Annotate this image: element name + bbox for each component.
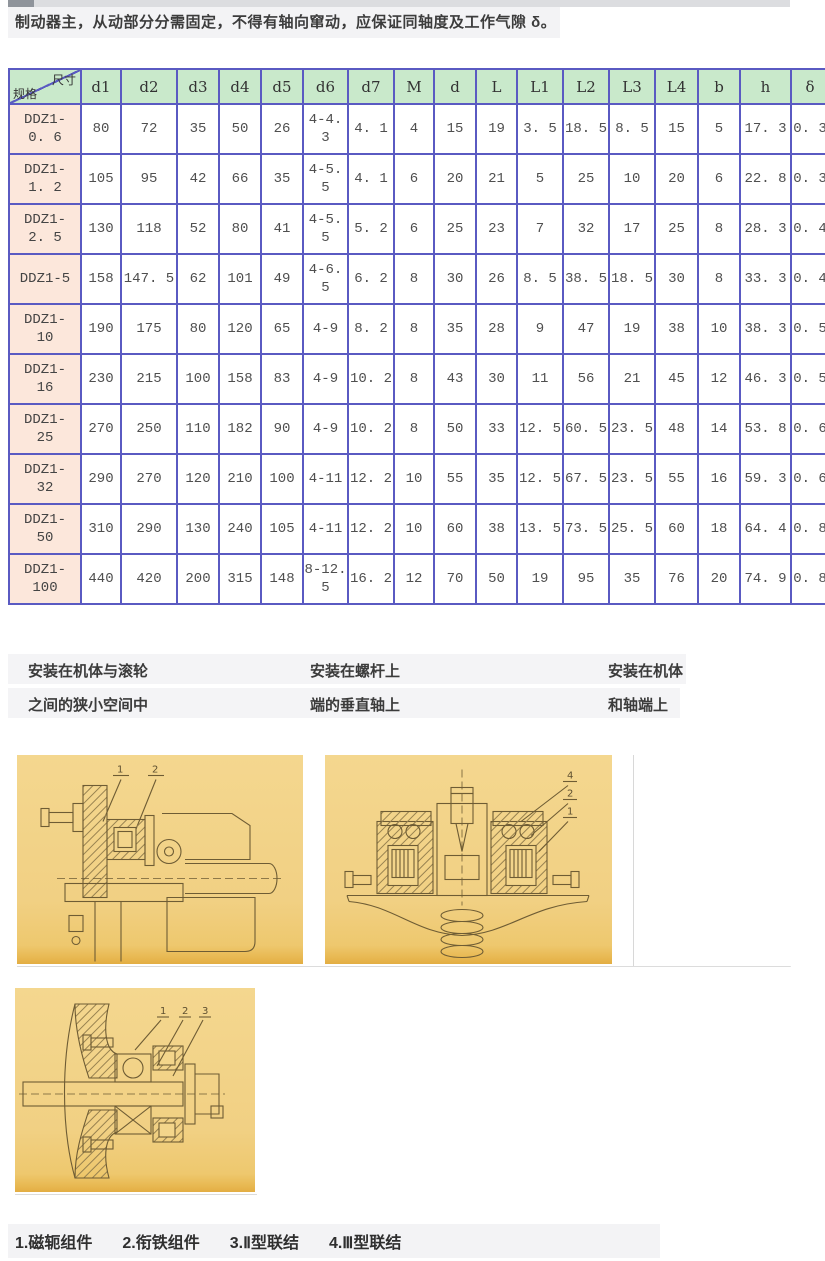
table-row: DDZ1-0. 680723550264-4. 34. 1415193. 518… xyxy=(9,104,825,154)
spec-cell: 28. 3 xyxy=(740,204,791,254)
spec-cell: 95 xyxy=(121,154,177,204)
spec-cell: 8-12. 5 xyxy=(303,554,348,604)
spec-cell: 10 xyxy=(394,504,434,554)
table-row: DDZ1-2. 51301185280414-5. 55. 2625237321… xyxy=(9,204,825,254)
spec-cell: 80 xyxy=(81,104,121,154)
spec-cell: 130 xyxy=(81,204,121,254)
spec-cell: 8 xyxy=(394,354,434,404)
spec-cell: 120 xyxy=(177,454,219,504)
spec-cell: 105 xyxy=(261,504,303,554)
spec-cell: 19 xyxy=(517,554,563,604)
spec-cell: 10 xyxy=(609,154,655,204)
spec-cell: 4-9 xyxy=(303,354,348,404)
spec-cell: 72 xyxy=(121,104,177,154)
figure-3-drawing: 1 2 3 xyxy=(15,988,255,1192)
spec-cell: 33. 3 xyxy=(740,254,791,304)
spec-cell: 10 xyxy=(394,454,434,504)
spec-cell: 66 xyxy=(219,154,261,204)
row-model-label: DDZ1-10 xyxy=(9,304,81,354)
spec-cell: 130 xyxy=(177,504,219,554)
spec-cell: 4. 1 xyxy=(348,154,394,204)
column-header-d5: d5 xyxy=(261,69,303,104)
legend-item: 1.磁轭组件 xyxy=(15,1229,92,1253)
mount-caption-2-line-2: 端的垂直轴上 xyxy=(310,694,400,715)
spec-cell: 38 xyxy=(655,304,698,354)
row-model-label: DDZ1-1. 2 xyxy=(9,154,81,204)
spec-cell: 30 xyxy=(655,254,698,304)
table-row: DDZ1-1. 2105954266354-5. 54. 16202152510… xyxy=(9,154,825,204)
spec-cell: 62 xyxy=(177,254,219,304)
spec-cell: 35 xyxy=(261,154,303,204)
spec-cell: 14 xyxy=(698,404,740,454)
row-model-label: DDZ1-25 xyxy=(9,404,81,454)
spec-cell: 12. 5 xyxy=(517,454,563,504)
spec-cell: 16. 2 xyxy=(348,554,394,604)
spec-cell: 60. 5 xyxy=(563,404,609,454)
spec-cell: 35 xyxy=(609,554,655,604)
column-header-M: M xyxy=(394,69,434,104)
spec-cell: 20 xyxy=(698,554,740,604)
table-row: DDZ1-5158147. 562101494-6. 56. 2830268. … xyxy=(9,254,825,304)
legend-item: 3.Ⅱ型联结 xyxy=(230,1229,299,1253)
spec-cell: 8. 2 xyxy=(348,304,394,354)
spec-cell: 17 xyxy=(609,204,655,254)
figure-2-vertical-shaft-mounting: 4 2 1 xyxy=(325,755,612,964)
spec-cell: 23. 5 xyxy=(609,404,655,454)
column-header-L4: L4 xyxy=(655,69,698,104)
spec-cell: 7 xyxy=(517,204,563,254)
spec-cell: 200 xyxy=(177,554,219,604)
spec-cell: 22. 8 xyxy=(740,154,791,204)
spec-cell: 26 xyxy=(476,254,517,304)
mount-caption-3-line-1: 安装在机体 xyxy=(608,660,683,681)
row-model-label: DDZ1-2. 5 xyxy=(9,204,81,254)
spec-cell: 230 xyxy=(81,354,121,404)
spec-cell: 158 xyxy=(219,354,261,404)
spec-cell: 17. 3 xyxy=(740,104,791,154)
spec-cell: 60 xyxy=(434,504,476,554)
spec-cell: 95 xyxy=(563,554,609,604)
spec-cell: 120 xyxy=(219,304,261,354)
spec-cell: 3. 5 xyxy=(517,104,563,154)
spec-cell: 182 xyxy=(219,404,261,454)
spec-cell: 49 xyxy=(261,254,303,304)
fig2-part-label-2: 2 xyxy=(567,789,573,800)
column-header-L1: L1 xyxy=(517,69,563,104)
spec-cell: 65 xyxy=(261,304,303,354)
parts-legend: 1.磁轭组件2.衔铁组件3.Ⅱ型联结4.Ⅲ型联结 xyxy=(8,1224,660,1258)
spec-cell: 0. 8 xyxy=(791,554,825,604)
spec-cell: 310 xyxy=(81,504,121,554)
spec-cell: 33 xyxy=(476,404,517,454)
spec-table: 尺寸 规格 d1d2d3d4d5d6d7MdLL1L2L3L4bhδ DDZ1-… xyxy=(8,68,825,605)
mount-caption-3-line-2: 和轴端上 xyxy=(608,694,668,715)
column-header-b: b xyxy=(698,69,740,104)
spec-cell: 215 xyxy=(121,354,177,404)
spec-cell: 42 xyxy=(177,154,219,204)
spec-cell: 59. 3 xyxy=(740,454,791,504)
legend-item: 2.衔铁组件 xyxy=(122,1229,199,1253)
spec-cell: 118 xyxy=(121,204,177,254)
spec-cell: 76 xyxy=(655,554,698,604)
spec-cell: 8 xyxy=(698,204,740,254)
spec-cell: 0. 6 xyxy=(791,454,825,504)
spec-cell: 50 xyxy=(219,104,261,154)
corner-spec-label: 规格 xyxy=(13,85,37,102)
fig2-part-label-1: 1 xyxy=(567,807,573,818)
spec-cell: 270 xyxy=(81,404,121,454)
mount-caption-1-line-2: 之间的狭小空间中 xyxy=(28,694,148,715)
spec-cell: 11 xyxy=(517,354,563,404)
spec-cell: 38. 5 xyxy=(563,254,609,304)
table-row: DDZ1-1019017580120654-98. 28352894719381… xyxy=(9,304,825,354)
spec-cell: 28 xyxy=(476,304,517,354)
spec-cell: 8 xyxy=(394,304,434,354)
row-model-label: DDZ1-100 xyxy=(9,554,81,604)
spec-cell: 67. 5 xyxy=(563,454,609,504)
spec-cell: 18. 5 xyxy=(563,104,609,154)
spec-cell: 6 xyxy=(698,154,740,204)
fig3-part-label-3: 3 xyxy=(202,1006,208,1017)
spec-cell: 6 xyxy=(394,154,434,204)
figure-3-shaft-end-mounting: 1 2 3 xyxy=(15,988,255,1192)
column-header-d: d xyxy=(434,69,476,104)
spec-cell: 0. 6 xyxy=(791,404,825,454)
column-header-d1: d1 xyxy=(81,69,121,104)
spec-cell: 50 xyxy=(434,404,476,454)
spec-cell: 0. 5 xyxy=(791,304,825,354)
figure-3-divider xyxy=(15,1194,257,1195)
spec-cell: 290 xyxy=(121,504,177,554)
spec-cell: 0. 4 xyxy=(791,254,825,304)
table-body: DDZ1-0. 680723550264-4. 34. 1415193. 518… xyxy=(9,104,825,604)
column-header-h: h xyxy=(740,69,791,104)
spec-cell: 41 xyxy=(261,204,303,254)
column-header-d2: d2 xyxy=(121,69,177,104)
spec-cell: 90 xyxy=(261,404,303,454)
spec-cell: 47 xyxy=(563,304,609,354)
column-header-d4: d4 xyxy=(219,69,261,104)
fig3-part-label-2: 2 xyxy=(182,1006,188,1017)
spec-cell: 32 xyxy=(563,204,609,254)
spec-cell: 13. 5 xyxy=(517,504,563,554)
spec-cell: 4-9 xyxy=(303,404,348,454)
corner-cell: 尺寸 规格 xyxy=(9,69,81,104)
spec-cell: 25 xyxy=(563,154,609,204)
spec-cell: 210 xyxy=(219,454,261,504)
spec-cell: 25 xyxy=(655,204,698,254)
spec-cell: 6 xyxy=(394,204,434,254)
spec-cell: 43 xyxy=(434,354,476,404)
spec-cell: 10. 2 xyxy=(348,354,394,404)
spec-cell: 290 xyxy=(81,454,121,504)
spec-cell: 148 xyxy=(261,554,303,604)
table-header-row: 尺寸 规格 d1d2d3d4d5d6d7MdLL1L2L3L4bhδ xyxy=(9,69,825,104)
spec-cell: 0. 8 xyxy=(791,504,825,554)
spec-cell: 20 xyxy=(655,154,698,204)
spec-cell: 26 xyxy=(261,104,303,154)
spec-cell: 100 xyxy=(177,354,219,404)
spec-cell: 147. 5 xyxy=(121,254,177,304)
spec-cell: 60 xyxy=(655,504,698,554)
row-model-label: DDZ1-50 xyxy=(9,504,81,554)
spec-cell: 21 xyxy=(609,354,655,404)
table-row: DDZ1-25270250110182904-910. 28503312. 56… xyxy=(9,404,825,454)
row-model-label: DDZ1-5 xyxy=(9,254,81,304)
spec-cell: 110 xyxy=(177,404,219,454)
empty-image-placeholder xyxy=(633,755,791,967)
spec-cell: 315 xyxy=(219,554,261,604)
spec-cell: 46. 3 xyxy=(740,354,791,404)
top-gray-strip xyxy=(8,0,790,7)
spec-cell: 10 xyxy=(698,304,740,354)
spec-cell: 55 xyxy=(434,454,476,504)
spec-cell: 80 xyxy=(177,304,219,354)
spec-cell: 5 xyxy=(517,154,563,204)
spec-cell: 175 xyxy=(121,304,177,354)
spec-cell: 190 xyxy=(81,304,121,354)
table-row: DDZ1-1004404202003151488-12. 516. 212705… xyxy=(9,554,825,604)
spec-cell: 0. 5 xyxy=(791,354,825,404)
spec-cell: 4-5. 5 xyxy=(303,154,348,204)
spec-cell: 105 xyxy=(81,154,121,204)
spec-cell: 38. 3 xyxy=(740,304,791,354)
spec-cell: 53. 8 xyxy=(740,404,791,454)
spec-cell: 38 xyxy=(476,504,517,554)
spec-cell: 6. 2 xyxy=(348,254,394,304)
spec-cell: 56 xyxy=(563,354,609,404)
spec-cell: 19 xyxy=(609,304,655,354)
fig3-part-label-1: 1 xyxy=(160,1006,166,1017)
spec-cell: 45 xyxy=(655,354,698,404)
spec-cell: 21 xyxy=(476,154,517,204)
row-model-label: DDZ1-0. 6 xyxy=(9,104,81,154)
spec-cell: 12. 2 xyxy=(348,504,394,554)
spec-cell: 4 xyxy=(394,104,434,154)
figure-2-drawing: 4 2 1 xyxy=(325,755,612,964)
page-headline: 制动器主，从动部分分需固定，不得有轴向窜动，应保证同轴度及工作气隙 δ。 xyxy=(15,11,575,32)
spec-cell: 270 xyxy=(121,454,177,504)
column-header-d3: d3 xyxy=(177,69,219,104)
spec-cell: 8. 5 xyxy=(517,254,563,304)
spec-cell: 10. 2 xyxy=(348,404,394,454)
column-header-L2: L2 xyxy=(563,69,609,104)
spec-cell: 4. 1 xyxy=(348,104,394,154)
row-model-label: DDZ1-16 xyxy=(9,354,81,404)
spec-cell: 74. 9 xyxy=(740,554,791,604)
spec-cell: 23 xyxy=(476,204,517,254)
table-row: DDZ1-16230215100158834-910. 284330115621… xyxy=(9,354,825,404)
mount-caption-1-line-1: 安装在机体与滚轮 xyxy=(28,660,148,681)
fig1-part-label-2: 2 xyxy=(152,765,158,776)
spec-cell: 73. 5 xyxy=(563,504,609,554)
column-header-d7: d7 xyxy=(348,69,394,104)
column-header-L3: L3 xyxy=(609,69,655,104)
spec-cell: 70 xyxy=(434,554,476,604)
spec-cell: 101 xyxy=(219,254,261,304)
mount-caption-2-line-1: 安装在螺杆上 xyxy=(310,660,400,681)
figure-1-drawing: 1 2 xyxy=(17,755,303,964)
spec-cell: 8 xyxy=(394,404,434,454)
spec-cell: 0. 3 xyxy=(791,154,825,204)
spec-cell: 35 xyxy=(476,454,517,504)
spec-cell: 5 xyxy=(698,104,740,154)
spec-cell: 64. 4 xyxy=(740,504,791,554)
spec-cell: 8 xyxy=(394,254,434,304)
spec-cell: 100 xyxy=(261,454,303,504)
spec-cell: 4-6. 5 xyxy=(303,254,348,304)
spec-cell: 440 xyxy=(81,554,121,604)
spec-cell: 25 xyxy=(434,204,476,254)
spec-cell: 18 xyxy=(698,504,740,554)
spec-cell: 0. 3 xyxy=(791,104,825,154)
figure-row-divider xyxy=(17,966,790,967)
spec-cell: 25. 5 xyxy=(609,504,655,554)
top-dark-strip xyxy=(8,0,34,7)
spec-cell: 15 xyxy=(655,104,698,154)
spec-cell: 12 xyxy=(698,354,740,404)
spec-cell: 18. 5 xyxy=(609,254,655,304)
table-row: DDZ1-503102901302401054-1112. 210603813.… xyxy=(9,504,825,554)
spec-cell: 35 xyxy=(177,104,219,154)
spec-cell: 4-5. 5 xyxy=(303,204,348,254)
spec-cell: 240 xyxy=(219,504,261,554)
spec-cell: 8. 5 xyxy=(609,104,655,154)
figure-1-narrow-space-mounting: 1 2 xyxy=(17,755,303,964)
row-model-label: DDZ1-32 xyxy=(9,454,81,504)
spec-cell: 20 xyxy=(434,154,476,204)
column-header-δ: δ xyxy=(791,69,825,104)
spec-cell: 30 xyxy=(476,354,517,404)
spec-cell: 52 xyxy=(177,204,219,254)
spec-cell: 23. 5 xyxy=(609,454,655,504)
table-row: DDZ1-322902701202101004-1112. 210553512.… xyxy=(9,454,825,504)
spec-cell: 250 xyxy=(121,404,177,454)
spec-cell: 8 xyxy=(698,254,740,304)
corner-size-label: 尺寸 xyxy=(52,71,76,88)
spec-cell: 16 xyxy=(698,454,740,504)
spec-cell: 12. 5 xyxy=(517,404,563,454)
spec-cell: 12. 2 xyxy=(348,454,394,504)
spec-table-wrap: 尺寸 规格 d1d2d3d4d5d6d7MdLL1L2L3L4bhδ DDZ1-… xyxy=(8,68,825,605)
legend-item: 4.Ⅲ型联结 xyxy=(329,1229,401,1253)
spec-cell: 4-11 xyxy=(303,504,348,554)
spec-cell: 55 xyxy=(655,454,698,504)
spec-cell: 30 xyxy=(434,254,476,304)
spec-cell: 420 xyxy=(121,554,177,604)
spec-cell: 4-9 xyxy=(303,304,348,354)
spec-cell: 4-4. 3 xyxy=(303,104,348,154)
spec-cell: 19 xyxy=(476,104,517,154)
spec-cell: 80 xyxy=(219,204,261,254)
column-header-d6: d6 xyxy=(303,69,348,104)
spec-cell: 5. 2 xyxy=(348,204,394,254)
spec-cell: 4-11 xyxy=(303,454,348,504)
spec-cell: 50 xyxy=(476,554,517,604)
spec-cell: 0. 4 xyxy=(791,204,825,254)
fig2-part-label-4: 4 xyxy=(567,771,573,782)
spec-cell: 83 xyxy=(261,354,303,404)
spec-cell: 48 xyxy=(655,404,698,454)
column-header-L: L xyxy=(476,69,517,104)
spec-cell: 12 xyxy=(394,554,434,604)
fig1-part-label-1: 1 xyxy=(117,765,123,776)
spec-cell: 15 xyxy=(434,104,476,154)
spec-cell: 35 xyxy=(434,304,476,354)
spec-cell: 158 xyxy=(81,254,121,304)
spec-cell: 9 xyxy=(517,304,563,354)
